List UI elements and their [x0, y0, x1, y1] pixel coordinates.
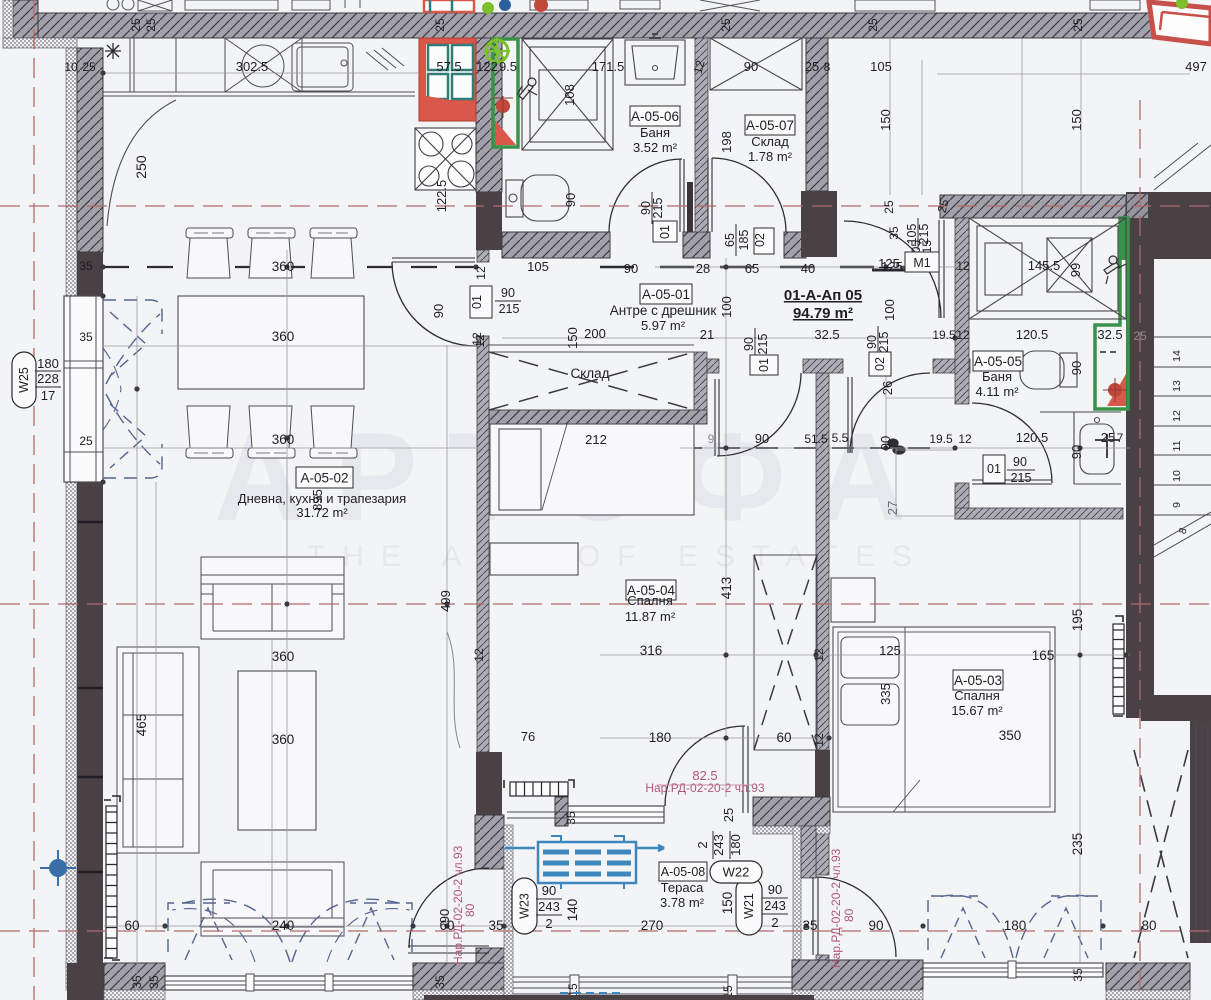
svg-text:02: 02: [753, 233, 767, 247]
svg-text:01: 01: [658, 225, 672, 239]
svg-text:90: 90: [563, 193, 578, 207]
svg-text:35: 35: [433, 975, 447, 989]
svg-text:100: 100: [719, 296, 734, 318]
svg-text:25: 25: [1133, 329, 1147, 343]
svg-text:100: 100: [882, 299, 897, 321]
svg-text:94.79 m²: 94.79 m²: [793, 305, 853, 322]
svg-text:25: 25: [866, 18, 880, 32]
svg-text:122: 122: [476, 59, 498, 74]
svg-text:413: 413: [719, 577, 734, 600]
svg-text:90: 90: [755, 431, 769, 446]
svg-text:01-А-Ап 05: 01-А-Ап 05: [784, 287, 862, 304]
svg-text:1.78 m²: 1.78 m²: [748, 149, 793, 164]
svg-text:215: 215: [1011, 471, 1032, 485]
svg-text:350: 350: [999, 728, 1022, 743]
svg-text:26: 26: [880, 381, 895, 395]
svg-text:243: 243: [538, 899, 560, 914]
svg-text:171.5: 171.5: [592, 59, 625, 74]
svg-text:32.5: 32.5: [814, 327, 839, 342]
svg-text:М1: М1: [913, 256, 930, 270]
svg-text:Тераса: Тераса: [661, 880, 704, 895]
svg-text:9: 9: [1171, 502, 1183, 508]
svg-text:120.5: 120.5: [1016, 327, 1049, 342]
svg-text:180: 180: [37, 356, 59, 371]
svg-text:А-05-06: А-05-06: [631, 109, 679, 124]
svg-text:180: 180: [649, 730, 672, 745]
svg-text:65: 65: [723, 233, 737, 247]
svg-text:25: 25: [805, 59, 819, 74]
svg-text:19.5: 19.5: [929, 432, 953, 446]
svg-text:15: 15: [566, 983, 580, 997]
svg-text:270: 270: [641, 918, 664, 933]
svg-text:21: 21: [700, 327, 714, 342]
svg-text:25: 25: [882, 200, 896, 214]
svg-text:35: 35: [887, 226, 901, 240]
svg-text:2: 2: [545, 916, 552, 931]
svg-text:80: 80: [842, 908, 856, 922]
svg-text:140: 140: [565, 899, 580, 922]
svg-text:90: 90: [744, 59, 758, 74]
svg-text:12: 12: [956, 328, 970, 342]
svg-text:250: 250: [133, 155, 149, 179]
svg-text:10: 10: [64, 60, 78, 74]
svg-text:14: 14: [1171, 350, 1183, 362]
svg-text:90: 90: [1069, 445, 1084, 459]
svg-text:90: 90: [542, 883, 556, 898]
svg-text:235: 235: [1070, 833, 1085, 856]
svg-text:35: 35: [1071, 968, 1085, 982]
svg-text:25: 25: [144, 18, 158, 32]
svg-text:40: 40: [801, 261, 815, 276]
svg-text:240: 240: [272, 918, 295, 933]
svg-text:25: 25: [79, 434, 93, 448]
svg-text:497: 497: [1185, 59, 1207, 74]
svg-text:35: 35: [79, 259, 93, 273]
svg-text:360: 360: [272, 732, 295, 747]
svg-text:9.5: 9.5: [499, 59, 517, 74]
svg-text:35: 35: [130, 975, 144, 989]
svg-text:35: 35: [79, 330, 93, 344]
svg-text:12: 12: [956, 259, 970, 273]
svg-text:Нар.РД-02-20-2 чл.93: Нар.РД-02-20-2 чл.93: [829, 848, 843, 968]
svg-text:228: 228: [37, 371, 59, 386]
svg-text:335: 335: [878, 683, 893, 705]
svg-text:01: 01: [470, 295, 484, 309]
svg-text:Склад: Склад: [751, 134, 789, 149]
svg-text:125: 125: [879, 643, 901, 658]
svg-text:35: 35: [488, 918, 503, 933]
svg-text:57.5: 57.5: [436, 59, 461, 74]
svg-text:12: 12: [958, 432, 972, 446]
svg-text:212: 212: [585, 432, 607, 447]
svg-text:01: 01: [987, 462, 1001, 476]
svg-text:А-05-03: А-05-03: [954, 673, 1002, 688]
svg-text:Спалня: Спалня: [627, 593, 672, 608]
svg-text:180: 180: [1004, 918, 1027, 933]
svg-text:5.97 m²: 5.97 m²: [641, 318, 686, 333]
svg-text:65: 65: [745, 261, 759, 276]
svg-text:25: 25: [1071, 18, 1085, 32]
svg-text:60: 60: [124, 918, 139, 933]
svg-text:90: 90: [1069, 361, 1084, 375]
svg-text:108: 108: [562, 84, 577, 106]
svg-text:185: 185: [737, 230, 751, 251]
svg-text:80: 80: [1141, 918, 1156, 933]
svg-text:А-05-08: А-05-08: [661, 865, 706, 879]
svg-text:60: 60: [776, 730, 791, 745]
svg-text:2: 2: [695, 841, 710, 848]
svg-text:60: 60: [439, 918, 454, 933]
svg-text:Склад: Склад: [570, 366, 609, 381]
svg-text:12: 12: [472, 648, 486, 662]
svg-text:9: 9: [708, 432, 715, 446]
svg-text:Нар.РД-02-20-2 чл.93: Нар.РД-02-20-2 чл.93: [645, 781, 765, 795]
svg-text:А-05-02: А-05-02: [300, 470, 348, 485]
svg-text:3.52 m²: 3.52 m²: [633, 140, 678, 155]
svg-text:360: 360: [272, 432, 295, 447]
svg-text:12: 12: [812, 733, 826, 747]
svg-text:А-05-07: А-05-07: [746, 118, 794, 133]
svg-text:215: 215: [756, 334, 770, 355]
svg-text:105: 105: [870, 59, 892, 74]
svg-text:W23: W23: [518, 893, 532, 919]
svg-text:90: 90: [624, 261, 638, 276]
svg-text:150: 150: [720, 892, 735, 915]
svg-text:90: 90: [742, 337, 756, 351]
svg-text:198: 198: [719, 131, 734, 153]
svg-text:13: 13: [1171, 380, 1183, 392]
svg-text:499: 499: [438, 590, 453, 612]
svg-text:35: 35: [147, 975, 161, 989]
svg-text:32.5: 32.5: [1097, 327, 1122, 342]
svg-text:122.5: 122.5: [434, 180, 449, 213]
svg-text:02: 02: [873, 357, 887, 371]
svg-text:51.5: 51.5: [804, 432, 828, 446]
svg-text:12: 12: [470, 332, 484, 346]
svg-text:215: 215: [651, 198, 665, 219]
svg-text:Баня: Баня: [982, 369, 1012, 384]
svg-text:150: 150: [878, 109, 893, 131]
svg-text:150: 150: [565, 327, 580, 349]
svg-text:Баня: Баня: [640, 125, 670, 140]
svg-text:28: 28: [696, 261, 710, 276]
svg-text:25: 25: [719, 18, 733, 32]
svg-text:165: 165: [1032, 648, 1055, 663]
svg-text:01: 01: [757, 358, 771, 372]
svg-text:W25: W25: [17, 367, 31, 393]
svg-text:11.87 m²: 11.87 m²: [625, 609, 676, 624]
svg-text:19.5: 19.5: [932, 328, 956, 342]
svg-text:2: 2: [771, 915, 778, 930]
svg-text:THE ART OF ESTATES: THE ART OF ESTATES: [307, 540, 929, 573]
svg-text:25: 25: [1101, 430, 1115, 445]
svg-text:215: 215: [499, 302, 520, 316]
svg-text:145.5: 145.5: [1028, 258, 1061, 273]
svg-text:99: 99: [1068, 263, 1083, 277]
svg-text:105: 105: [527, 259, 549, 274]
svg-text:11: 11: [1171, 440, 1183, 451]
svg-text:360: 360: [272, 329, 295, 344]
svg-text:90: 90: [878, 436, 893, 450]
svg-text:8: 8: [824, 60, 831, 74]
svg-text:90: 90: [501, 286, 515, 300]
svg-text:243: 243: [764, 898, 786, 913]
svg-text:200: 200: [584, 326, 606, 341]
svg-text:10: 10: [1171, 470, 1183, 482]
svg-text:12: 12: [474, 266, 488, 280]
svg-text:А-05-05: А-05-05: [974, 354, 1022, 369]
svg-text:W22: W22: [723, 865, 750, 880]
svg-text:25: 25: [433, 18, 447, 32]
svg-text:7: 7: [1117, 431, 1124, 445]
svg-text:120.5: 120.5: [1016, 430, 1049, 445]
svg-text:90: 90: [431, 304, 446, 318]
svg-text:15.67 m²: 15.67 m²: [951, 703, 1003, 718]
svg-text:25: 25: [721, 808, 736, 822]
svg-text:215: 215: [877, 332, 891, 353]
svg-text:W21: W21: [742, 893, 756, 919]
svg-text:895: 895: [310, 489, 325, 511]
svg-text:25: 25: [129, 18, 143, 32]
svg-text:90: 90: [768, 882, 782, 897]
svg-text:215: 215: [917, 224, 931, 245]
svg-text:12: 12: [812, 648, 826, 662]
svg-text:17: 17: [41, 388, 55, 403]
svg-text:125: 125: [878, 256, 900, 271]
svg-text:76: 76: [521, 729, 535, 744]
svg-text:12: 12: [1171, 410, 1183, 422]
svg-text:302.5: 302.5: [236, 59, 269, 74]
svg-text:150: 150: [1069, 109, 1084, 131]
svg-text:90: 90: [868, 918, 883, 933]
svg-text:5.5: 5.5: [832, 431, 849, 445]
svg-text:3.78 m²: 3.78 m²: [660, 895, 705, 910]
svg-text:Антре с дрешник: Антре с дрешник: [610, 303, 717, 318]
svg-text:316: 316: [640, 643, 663, 658]
svg-text:А-05-01: А-05-01: [642, 287, 690, 302]
svg-text:27: 27: [885, 501, 900, 515]
svg-text:90: 90: [1013, 455, 1027, 469]
svg-text:4.11 m²: 4.11 m²: [975, 384, 1019, 399]
svg-text:360: 360: [272, 649, 295, 664]
svg-text:195: 195: [1070, 609, 1085, 632]
svg-text:360: 360: [272, 259, 295, 274]
svg-text:Спалня: Спалня: [954, 688, 999, 703]
svg-text:80: 80: [463, 903, 477, 917]
svg-text:465: 465: [134, 714, 149, 737]
svg-text:35: 35: [802, 918, 817, 933]
svg-text:35: 35: [564, 811, 578, 825]
svg-text:25: 25: [82, 60, 96, 74]
